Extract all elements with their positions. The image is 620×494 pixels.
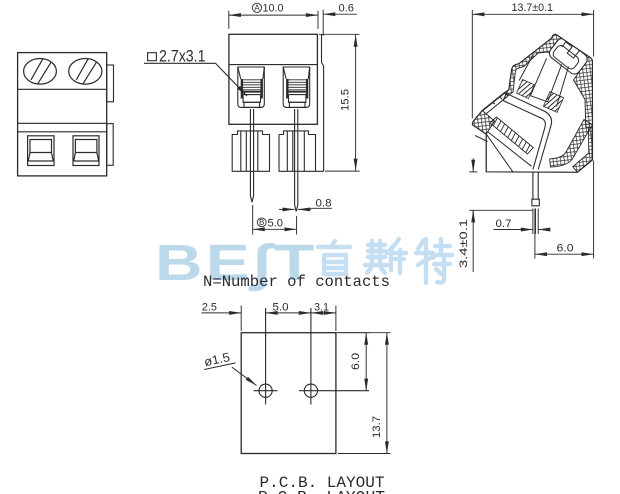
svg-text:P.C.B. LAYOUT: P.C.B. LAYOUT bbox=[258, 489, 385, 494]
svg-text:5.0: 5.0 bbox=[268, 217, 284, 229]
svg-text:3.4±0.1: 3.4±0.1 bbox=[458, 219, 470, 268]
svg-text:0.7: 0.7 bbox=[496, 218, 512, 230]
svg-text:6.0: 6.0 bbox=[350, 353, 362, 370]
svg-text:B: B bbox=[259, 218, 264, 227]
svg-text:0.8: 0.8 bbox=[316, 198, 332, 210]
svg-text:2.7x3.1: 2.7x3.1 bbox=[159, 48, 206, 66]
svg-text:3.1: 3.1 bbox=[314, 302, 329, 314]
svg-text:5.0: 5.0 bbox=[273, 302, 289, 314]
svg-text:15.5: 15.5 bbox=[340, 89, 352, 111]
svg-text:10.0: 10.0 bbox=[263, 2, 284, 14]
svg-text:0.6: 0.6 bbox=[339, 3, 355, 15]
svg-text:2.5: 2.5 bbox=[202, 302, 217, 314]
svg-text:13.7: 13.7 bbox=[371, 416, 383, 438]
svg-text:A: A bbox=[254, 4, 260, 13]
svg-text:6.0: 6.0 bbox=[557, 243, 574, 255]
svg-text:13.7±0.1: 13.7±0.1 bbox=[512, 2, 554, 14]
svg-text:N=Number of contacts: N=Number of contacts bbox=[203, 273, 390, 291]
